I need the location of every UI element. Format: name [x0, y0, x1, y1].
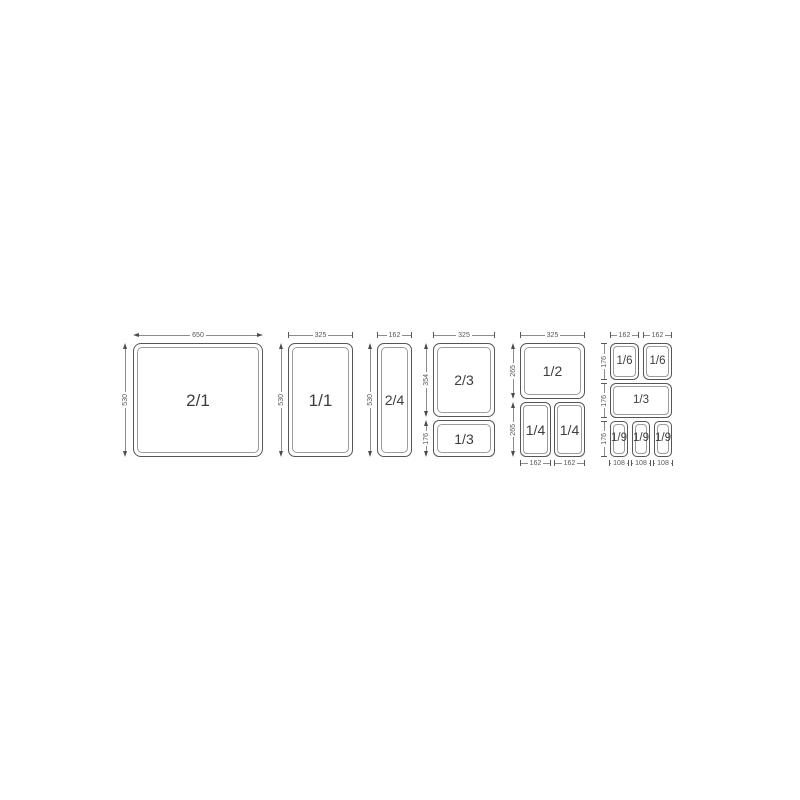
pan-label: 1/4 — [526, 423, 545, 437]
arrow-down-icon — [424, 451, 428, 457]
dim-label: 530 — [122, 392, 129, 408]
arrow-down-icon — [424, 411, 428, 417]
arrow-down-icon — [511, 393, 515, 399]
dim-bottom-108-c: 108 — [653, 459, 673, 467]
dim-side-265-b: 265 — [509, 402, 517, 457]
pan-label: 1/4 — [560, 423, 579, 437]
dim-side-530-g2: 530 — [277, 343, 285, 457]
dim-label: 325 — [456, 332, 472, 339]
pan-1-3: 1/3 — [433, 420, 495, 457]
arrow-down-icon — [511, 451, 515, 457]
dim-label: 162 — [528, 460, 544, 467]
dim-label: 176 — [601, 354, 608, 370]
pan-label: 1/3 — [454, 432, 473, 446]
dim-side-265-a: 265 — [509, 343, 517, 399]
arrow-down-icon — [279, 451, 283, 457]
pan-label: 2/4 — [385, 393, 404, 407]
pan-1-1: 1/1 — [288, 343, 353, 457]
dim-label: 325 — [313, 332, 329, 339]
dim-label: 162 — [387, 332, 403, 339]
dim-side-530-g1: 530 — [121, 343, 129, 457]
pan-label: 2/1 — [186, 392, 210, 409]
dim-top-162-g3: 162 — [377, 331, 412, 339]
dim-label: 162 — [562, 460, 578, 467]
pan-1-9-b: 1/9 — [632, 421, 650, 457]
dim-side-176-c: 176 — [600, 421, 608, 457]
dim-bottom-108-a: 108 — [609, 459, 629, 467]
dim-label: 354 — [423, 372, 430, 388]
dim-label: 108 — [611, 460, 627, 467]
dim-label: 162 — [650, 332, 666, 339]
dim-label: 162 — [617, 332, 633, 339]
pan-1-3-wide: 1/3 — [610, 383, 672, 418]
pan-1-6-right: 1/6 — [643, 343, 672, 380]
dim-label: 530 — [278, 392, 285, 408]
pan-1-4-right: 1/4 — [554, 402, 585, 457]
pan-1-9-c: 1/9 — [654, 421, 672, 457]
dim-side-530-g3: 530 — [366, 343, 374, 457]
pan-1-4-left: 1/4 — [520, 402, 551, 457]
dim-side-176-g4: 176 — [422, 420, 430, 457]
dim-label: 265 — [510, 422, 517, 438]
pan-label: 1/6 — [617, 356, 633, 368]
pan-1-6-left: 1/6 — [610, 343, 639, 380]
dim-label: 325 — [545, 332, 561, 339]
dim-bottom-108-b: 108 — [631, 459, 651, 467]
arrow-down-icon — [123, 451, 127, 457]
dim-top-325-g2: 325 — [288, 331, 353, 339]
dim-label: 108 — [655, 460, 671, 467]
dim-top-650: 650 — [133, 331, 263, 339]
dim-label: 176 — [423, 431, 430, 447]
pan-label: 1/2 — [543, 364, 562, 378]
pan-label: 2/3 — [454, 373, 473, 387]
pan-label: 1/9 — [655, 433, 671, 445]
diagram: 650 530 2/1 325 530 1/1 162 — [0, 0, 800, 800]
dim-side-176-a: 176 — [600, 343, 608, 380]
pan-2-3: 2/3 — [433, 343, 495, 417]
dim-side-354: 354 — [422, 343, 430, 417]
dim-bottom-162-a: 162 — [520, 459, 551, 467]
dim-label: 265 — [510, 363, 517, 379]
pan-label: 1/3 — [633, 395, 649, 407]
dim-top-162-b: 162 — [643, 331, 672, 339]
pan-2-4: 2/4 — [377, 343, 412, 457]
dim-top-325-g4: 325 — [433, 331, 495, 339]
arrow-down-icon — [368, 451, 372, 457]
dim-side-176-b: 176 — [600, 383, 608, 418]
pan-label: 1/6 — [650, 356, 666, 368]
dim-top-325-g5: 325 — [520, 331, 585, 339]
pan-label: 1/1 — [309, 392, 333, 409]
dim-label: 176 — [601, 393, 608, 409]
dim-label: 176 — [601, 431, 608, 447]
dim-label: 650 — [190, 332, 206, 339]
pan-label: 1/9 — [633, 433, 649, 445]
dim-top-162-a: 162 — [610, 331, 639, 339]
pan-1-2: 1/2 — [520, 343, 585, 399]
pan-1-9-a: 1/9 — [610, 421, 628, 457]
dim-label: 108 — [633, 460, 649, 467]
dim-label: 530 — [367, 392, 374, 408]
arrow-right-icon — [257, 333, 263, 337]
dim-bottom-162-b: 162 — [554, 459, 585, 467]
pan-label: 1/9 — [611, 433, 627, 445]
pan-2-1: 2/1 — [133, 343, 263, 457]
